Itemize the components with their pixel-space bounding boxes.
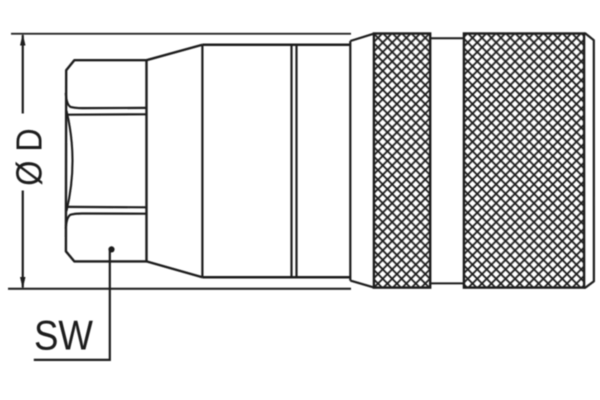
svg-text:Ø D: Ø D bbox=[9, 128, 50, 186]
svg-text:SW: SW bbox=[34, 313, 93, 359]
